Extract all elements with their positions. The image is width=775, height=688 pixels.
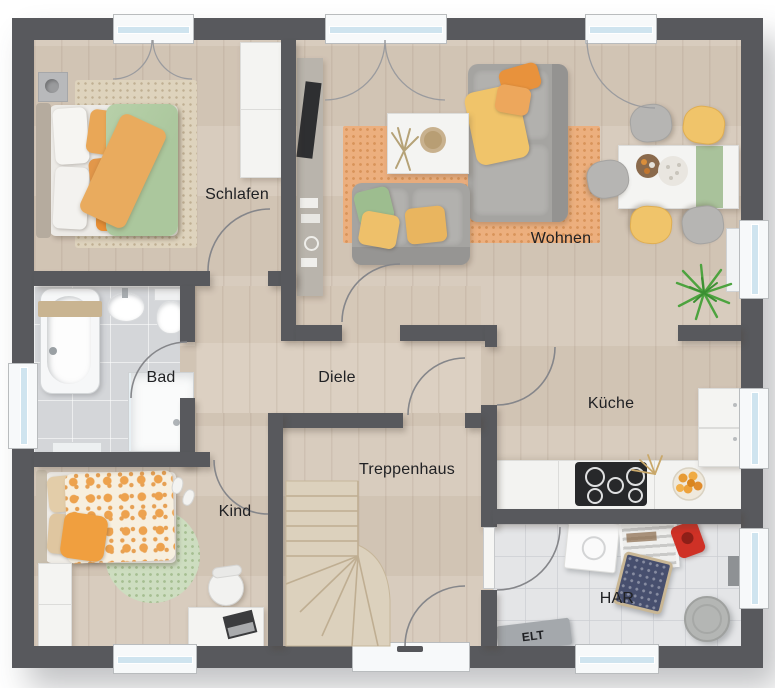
wall-segment	[268, 413, 403, 428]
wall-segment	[400, 325, 485, 341]
window	[8, 363, 38, 449]
floorplan: Schlafen Wohnen Bad Diele Küche Kind Tre…	[0, 0, 775, 688]
wall-outer-left	[12, 18, 34, 668]
wall-segment	[180, 286, 195, 342]
double-bed	[36, 103, 178, 238]
schlafen-wardrobe	[240, 42, 283, 178]
cooktop	[575, 462, 647, 506]
bathtub	[40, 288, 100, 394]
books	[301, 214, 320, 223]
bed-headboard	[36, 470, 47, 565]
window	[585, 14, 657, 44]
room-label-treppenhaus: Treppenhaus	[359, 461, 455, 479]
desk-chair	[206, 566, 246, 608]
room-label-wohnen: Wohnen	[531, 230, 592, 248]
wall-segment	[34, 452, 210, 467]
bed-headboard	[36, 103, 51, 238]
window	[739, 388, 769, 469]
room-label-kind: Kind	[219, 503, 252, 521]
faucet-icon	[49, 347, 57, 355]
sofa-bottom	[352, 183, 470, 265]
slippers	[172, 477, 194, 507]
decor-ring-icon	[304, 236, 319, 251]
lamp-shade-icon	[45, 79, 59, 93]
yellow-pillow	[404, 205, 448, 245]
books	[301, 258, 317, 267]
diele-floor	[195, 286, 481, 413]
window	[325, 14, 447, 44]
yellow-pillow	[357, 210, 400, 250]
room-label-bad: Bad	[146, 369, 175, 387]
room-label-diele: Diele	[318, 369, 355, 387]
tv-board	[297, 58, 323, 296]
orange-pillow	[494, 83, 532, 116]
pillow	[52, 107, 90, 165]
dining-table	[618, 145, 739, 209]
wall-segment	[678, 325, 741, 341]
tap-icon	[122, 288, 128, 298]
coffee-table	[387, 113, 469, 174]
wall-segment	[34, 271, 210, 286]
sink	[103, 288, 147, 332]
desk	[188, 607, 264, 647]
room-label-har: HAR	[600, 590, 634, 608]
ceiling-lamp	[38, 72, 68, 102]
wall-segment	[493, 509, 741, 524]
wall-segment	[481, 590, 497, 646]
books	[300, 198, 318, 208]
window	[575, 644, 659, 674]
wall-segment	[281, 40, 296, 341]
har-door-leaf	[483, 527, 495, 589]
wall-segment	[465, 413, 481, 428]
window	[739, 220, 769, 299]
table-runner	[696, 146, 723, 208]
room-label-schlafen: Schlafen	[205, 186, 269, 204]
shower-drain-icon	[173, 419, 180, 426]
room-label-kueche: Küche	[588, 395, 634, 413]
wall-segment	[268, 413, 283, 646]
room-label-elt: ELT	[521, 628, 545, 645]
kind-wardrobe	[38, 563, 72, 647]
round-basket	[684, 596, 730, 642]
wall-segment	[485, 325, 497, 347]
kids-bed	[36, 470, 176, 565]
door-handle-icon	[397, 646, 423, 652]
laptop-icon	[223, 610, 258, 640]
orange-blanket	[59, 511, 109, 563]
window	[113, 644, 197, 674]
window	[739, 528, 769, 609]
entry-door	[352, 642, 470, 672]
fridge-unit	[698, 388, 742, 467]
washing-machine	[564, 518, 621, 573]
sofa-top	[468, 64, 568, 222]
window	[113, 14, 194, 44]
wall-segment	[296, 325, 342, 341]
tub-caddy	[38, 301, 102, 317]
tv-icon	[296, 81, 321, 158]
